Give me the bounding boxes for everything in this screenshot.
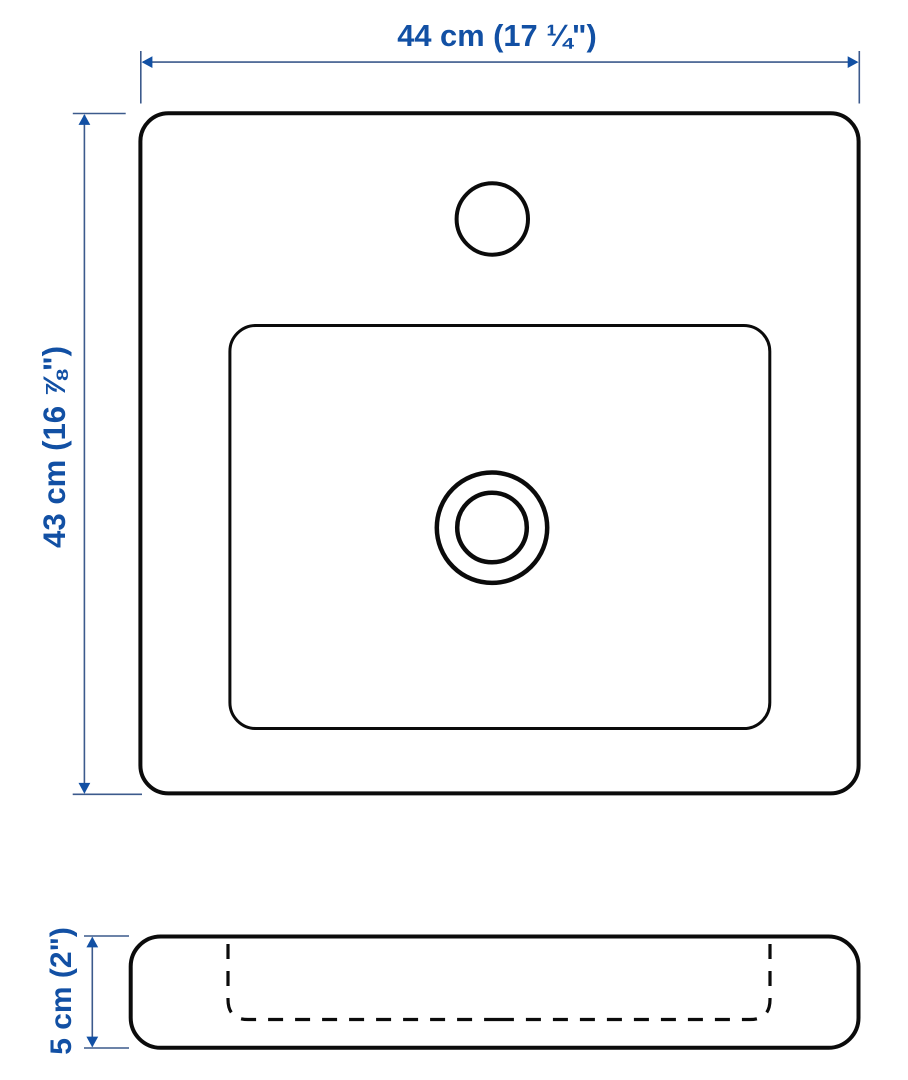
svg-text:43 cm (16 ⅞"): 43 cm (16 ⅞") — [37, 346, 72, 548]
svg-text:5 cm (2"): 5 cm (2") — [45, 927, 78, 1055]
svg-text:44 cm (17 ¼"): 44 cm (17 ¼") — [397, 18, 597, 53]
